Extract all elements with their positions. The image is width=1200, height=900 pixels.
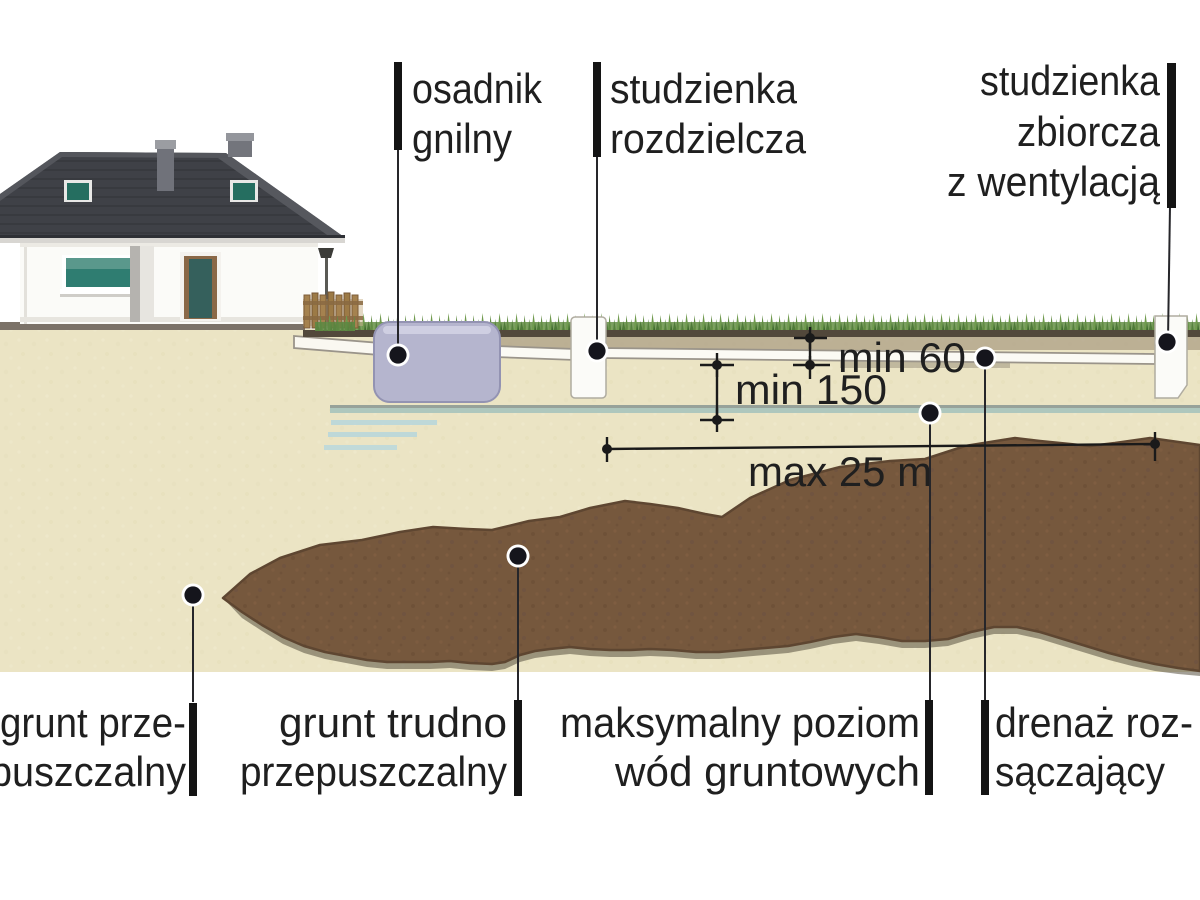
svg-text:drenaż roz-: drenaż roz- xyxy=(995,699,1193,746)
svg-text:min 150: min 150 xyxy=(735,366,887,413)
svg-text:wód gruntowych: wód gruntowych xyxy=(614,748,920,795)
svg-text:max 25 m: max 25 m xyxy=(748,448,932,495)
svg-text:z wentylacją: z wentylacją xyxy=(947,158,1161,205)
svg-text:sączający: sączający xyxy=(995,748,1165,795)
svg-text:grunt trudno: grunt trudno xyxy=(279,699,507,746)
svg-text:studzienka: studzienka xyxy=(610,65,798,112)
svg-text:rozdzielcza: rozdzielcza xyxy=(610,115,807,162)
svg-text:gnilny: gnilny xyxy=(412,115,512,162)
svg-text:przepuszczalny: przepuszczalny xyxy=(240,748,507,795)
svg-text:studzienka: studzienka xyxy=(980,57,1161,104)
svg-text:maksymalny poziom: maksymalny poziom xyxy=(560,699,920,746)
svg-text:puszczalny: puszczalny xyxy=(0,748,186,795)
svg-text:grunt prze-: grunt prze- xyxy=(0,699,186,746)
svg-text:osadnik: osadnik xyxy=(412,65,543,112)
svg-text:zbiorcza: zbiorcza xyxy=(1017,108,1161,155)
